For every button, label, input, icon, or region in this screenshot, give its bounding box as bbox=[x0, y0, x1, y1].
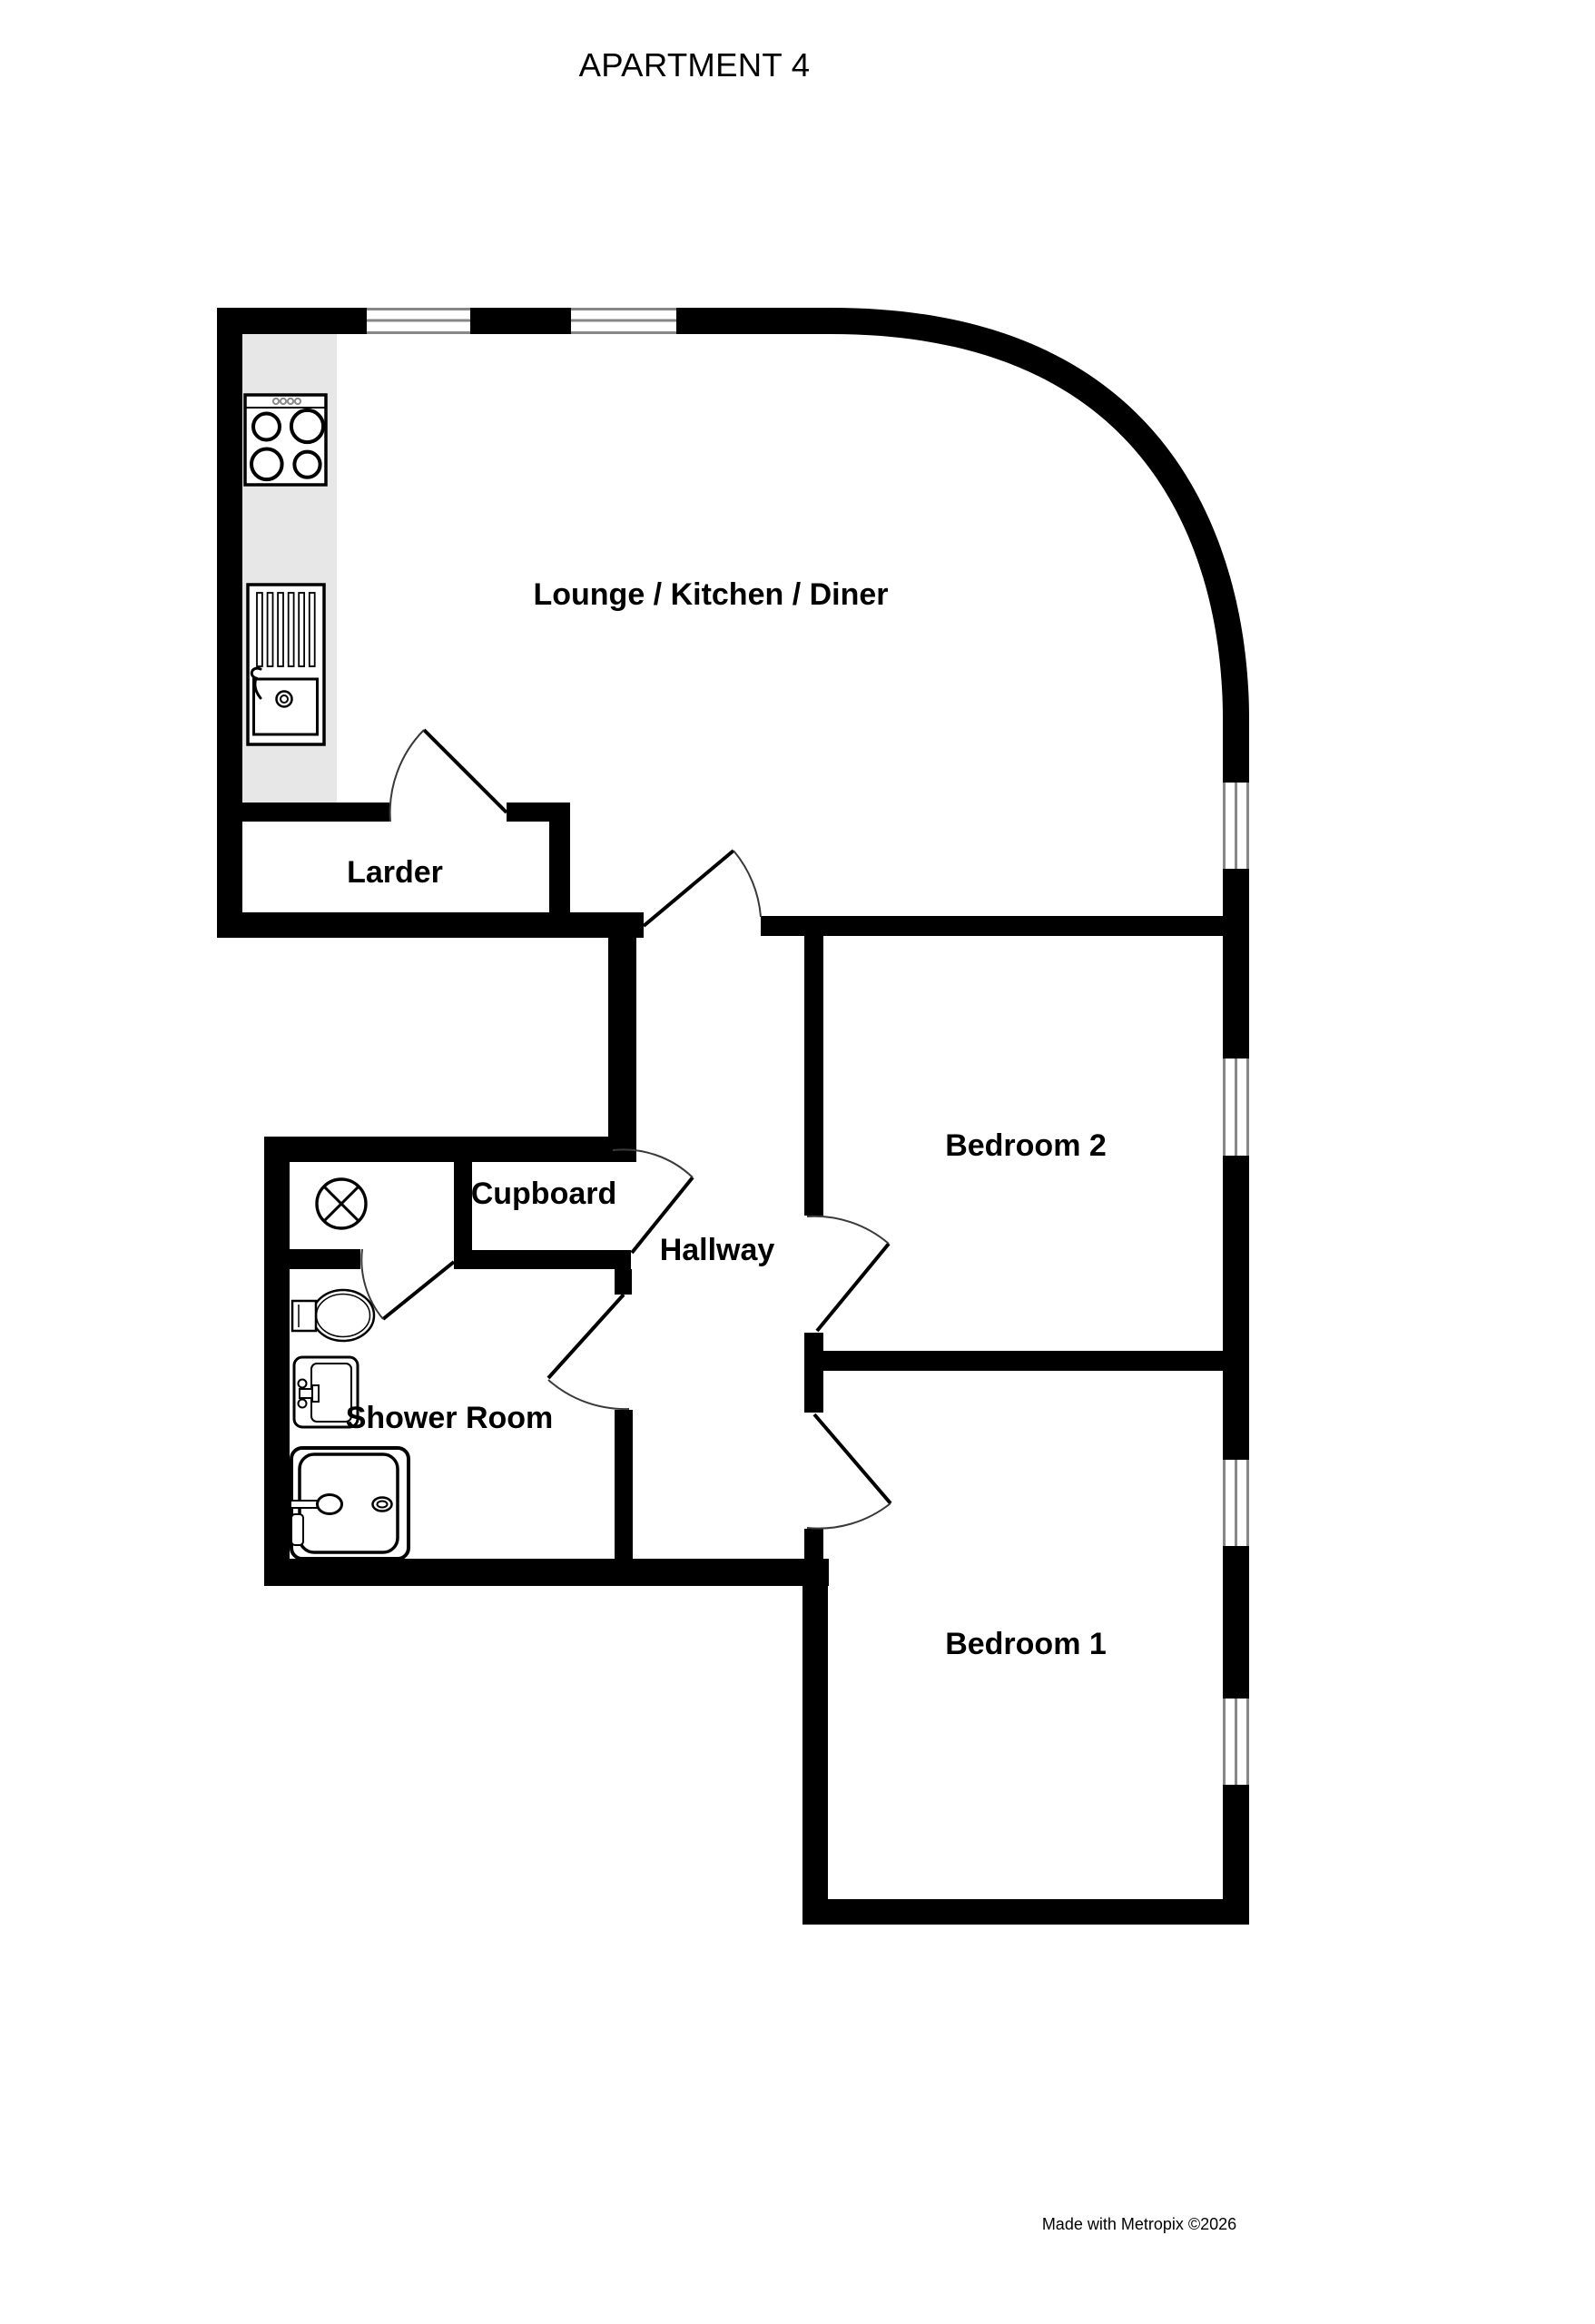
svg-text:Larder: Larder bbox=[347, 855, 443, 890]
svg-text:Lounge / Kitchen / Diner: Lounge / Kitchen / Diner bbox=[533, 577, 888, 612]
svg-text:Bedroom 1: Bedroom 1 bbox=[945, 1627, 1107, 1661]
svg-text:Shower Room: Shower Room bbox=[346, 1401, 554, 1435]
svg-text:Bedroom 2: Bedroom 2 bbox=[945, 1128, 1107, 1163]
svg-text:Cupboard: Cupboard bbox=[471, 1177, 617, 1211]
svg-text:APARTMENT 4: APARTMENT 4 bbox=[579, 46, 811, 84]
svg-text:Hallway: Hallway bbox=[660, 1233, 775, 1267]
svg-text:Made with Metropix ©2026: Made with Metropix ©2026 bbox=[1042, 2215, 1236, 2233]
